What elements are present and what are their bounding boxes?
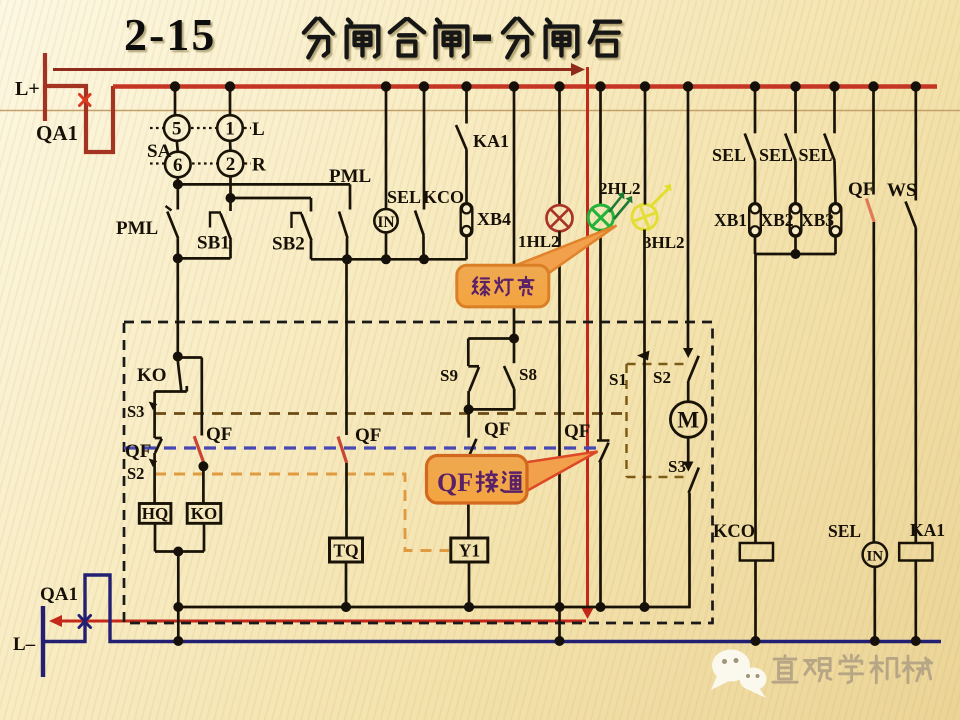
svg-text:Y1: Y1 — [459, 541, 480, 561]
svg-text:1: 1 — [225, 119, 235, 140]
svg-text:L+: L+ — [15, 78, 40, 100]
svg-text:S3: S3 — [127, 402, 144, 421]
svg-text:S9: S9 — [440, 366, 458, 385]
svg-text:KCO: KCO — [423, 187, 464, 207]
svg-text:HQ: HQ — [142, 504, 168, 523]
svg-text:S2: S2 — [127, 464, 144, 483]
svg-text:QF: QF — [125, 441, 151, 462]
svg-text:QF: QF — [355, 425, 381, 446]
svg-text:SA: SA — [147, 141, 172, 162]
svg-text:PML: PML — [116, 218, 158, 239]
svg-text:SB2: SB2 — [272, 234, 305, 255]
svg-text:IN: IN — [377, 214, 394, 231]
svg-text:6: 6 — [173, 155, 183, 176]
svg-text:XB1: XB1 — [714, 210, 747, 230]
svg-text:2: 2 — [226, 154, 236, 175]
svg-text:KO: KO — [191, 504, 217, 523]
svg-text:SEL: SEL — [387, 187, 421, 207]
svg-text:TQ: TQ — [333, 541, 358, 561]
svg-text:S2: S2 — [653, 368, 671, 387]
svg-text:QA1: QA1 — [36, 121, 78, 145]
svg-text:KO: KO — [137, 365, 167, 386]
svg-text:XB4: XB4 — [477, 209, 511, 229]
svg-text:XB3: XB3 — [801, 210, 834, 230]
svg-text:SB1: SB1 — [197, 233, 230, 254]
svg-text:3HL2: 3HL2 — [643, 233, 685, 252]
svg-text:KCO: KCO — [713, 522, 755, 542]
svg-text:1HL2: 1HL2 — [518, 232, 560, 251]
svg-text:M: M — [677, 408, 699, 433]
svg-text:SEL: SEL — [799, 145, 833, 165]
svg-text:KA1: KA1 — [910, 520, 945, 540]
svg-text:L: L — [252, 119, 265, 140]
svg-text:QF: QF — [484, 419, 510, 440]
svg-text:L–: L– — [13, 634, 36, 655]
svg-text:5: 5 — [172, 119, 182, 140]
svg-text:QF: QF — [437, 468, 473, 497]
svg-text:S8: S8 — [519, 365, 537, 384]
svg-text:QA1: QA1 — [40, 584, 78, 605]
svg-text:QF: QF — [848, 179, 874, 200]
svg-text:S1: S1 — [609, 370, 627, 389]
svg-text:SEL: SEL — [759, 145, 793, 165]
svg-text:PML: PML — [329, 166, 371, 187]
svg-text:SEL: SEL — [712, 145, 746, 165]
svg-text:R: R — [252, 155, 266, 176]
svg-text:KA1: KA1 — [473, 131, 509, 151]
svg-text:S3: S3 — [668, 457, 686, 476]
svg-text:QF: QF — [564, 421, 590, 442]
svg-text:SEL: SEL — [828, 521, 861, 541]
svg-text:QF: QF — [206, 424, 232, 445]
svg-text:IN: IN — [866, 549, 883, 565]
svg-text:XB2: XB2 — [761, 210, 794, 230]
svg-text:2-15: 2-15 — [124, 9, 216, 60]
svg-text:WS: WS — [887, 180, 917, 201]
